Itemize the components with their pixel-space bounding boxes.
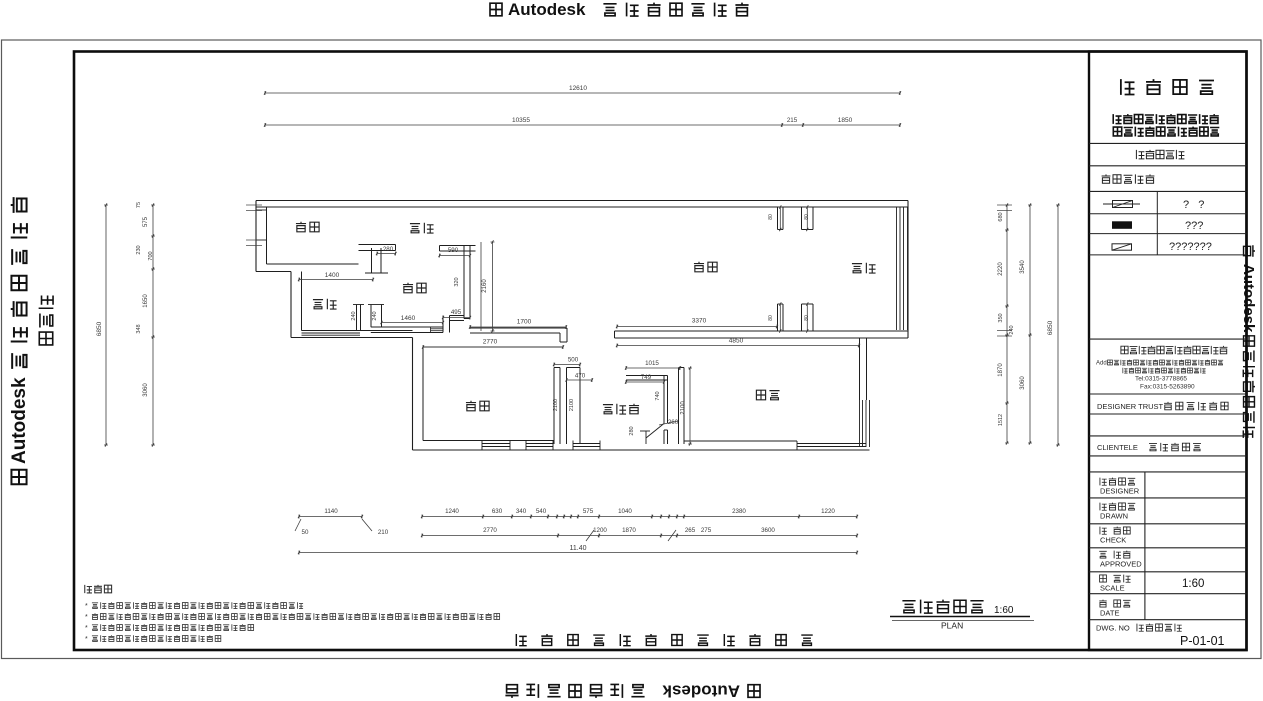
svg-text:630: 630 <box>492 508 503 515</box>
svg-text:CHECK: CHECK <box>1100 536 1126 545</box>
svg-text:6850: 6850 <box>96 321 103 336</box>
svg-text:1700: 1700 <box>517 319 532 326</box>
svg-text:Autodesk: Autodesk <box>508 0 586 19</box>
svg-text:540: 540 <box>536 508 547 515</box>
svg-text:2100: 2100 <box>569 399 575 411</box>
svg-text:590: 590 <box>448 247 459 254</box>
svg-text:*: * <box>85 603 88 610</box>
svg-text:575: 575 <box>583 508 594 515</box>
svg-text:500: 500 <box>568 357 579 364</box>
svg-text:749: 749 <box>641 374 652 381</box>
svg-text:DESIGNER: DESIGNER <box>1100 487 1140 496</box>
svg-text:2770: 2770 <box>483 339 498 346</box>
svg-text:DESIGNER TRUST: DESIGNER TRUST <box>1097 402 1164 411</box>
svg-text:CLIENTELE: CLIENTELE <box>1097 443 1138 452</box>
svg-text:DATE: DATE <box>1100 609 1119 618</box>
svg-text:1140: 1140 <box>324 508 338 515</box>
svg-text:1650: 1650 <box>143 294 149 308</box>
svg-text:???????: ??????? <box>1169 241 1212 253</box>
svg-text:Add:: Add: <box>1096 361 1109 367</box>
svg-text:APPROVED: APPROVED <box>1100 560 1142 569</box>
svg-text:740: 740 <box>655 391 661 400</box>
svg-text:*: * <box>85 614 88 621</box>
svg-text:SCALE: SCALE <box>1100 584 1125 593</box>
svg-text:1400: 1400 <box>325 272 340 279</box>
svg-text:3540: 3540 <box>1020 260 1026 274</box>
svg-text:50: 50 <box>302 529 309 536</box>
svg-text:2380: 2380 <box>732 508 746 515</box>
svg-text:? ?: ? ? <box>1183 199 1204 211</box>
svg-text:470: 470 <box>575 373 586 380</box>
svg-text:3060: 3060 <box>143 383 149 397</box>
svg-text:10355: 10355 <box>512 117 530 124</box>
svg-text:1870: 1870 <box>622 527 636 534</box>
svg-text:2100: 2100 <box>681 401 687 415</box>
svg-text:12610: 12610 <box>569 85 587 92</box>
svg-text:6850: 6850 <box>1047 320 1054 335</box>
svg-text:2770: 2770 <box>483 527 497 534</box>
svg-text:210: 210 <box>378 529 389 536</box>
svg-text:4850: 4850 <box>729 338 744 345</box>
svg-text:1460: 1460 <box>401 315 416 322</box>
svg-text:1850: 1850 <box>838 117 853 124</box>
svg-text:495: 495 <box>451 309 462 316</box>
svg-text:680: 680 <box>998 212 1004 221</box>
svg-text:1015: 1015 <box>645 360 659 367</box>
svg-text:230: 230 <box>136 245 142 254</box>
svg-text:700: 700 <box>148 251 154 260</box>
svg-text:340: 340 <box>516 508 527 515</box>
svg-text:PLAN: PLAN <box>941 621 963 631</box>
svg-text:Autodesk: Autodesk <box>9 377 30 464</box>
svg-text:80: 80 <box>768 315 774 321</box>
svg-text:1200: 1200 <box>593 527 607 534</box>
svg-text:350: 350 <box>998 313 1004 322</box>
svg-text:Tel:0315-3778865: Tel:0315-3778865 <box>1135 376 1187 383</box>
svg-text:348: 348 <box>136 324 142 333</box>
svg-text:DRAWN: DRAWN <box>1100 512 1128 521</box>
svg-text:575: 575 <box>143 216 149 227</box>
svg-text:1040: 1040 <box>618 508 632 515</box>
svg-text:2100: 2100 <box>553 399 559 411</box>
svg-text:P-01-01: P-01-01 <box>1180 634 1225 648</box>
svg-text:1512: 1512 <box>998 414 1004 426</box>
svg-text:1870: 1870 <box>998 363 1004 377</box>
svg-text:320: 320 <box>454 277 460 286</box>
svg-text:280: 280 <box>383 246 394 253</box>
svg-text:Autodesk: Autodesk <box>662 682 740 701</box>
svg-text:275: 275 <box>701 527 712 534</box>
svg-text:3060: 3060 <box>1020 376 1026 390</box>
svg-text:1:60: 1:60 <box>994 605 1014 616</box>
svg-text:265: 265 <box>685 527 696 534</box>
svg-text:1:60: 1:60 <box>1182 578 1204 590</box>
svg-text:*: * <box>85 625 88 632</box>
svg-text:75: 75 <box>136 202 142 208</box>
svg-text:3370: 3370 <box>692 318 707 325</box>
svg-text:240: 240 <box>372 311 378 320</box>
svg-text:1220: 1220 <box>821 508 835 515</box>
svg-text:3600: 3600 <box>761 527 775 534</box>
svg-text:240: 240 <box>351 311 357 320</box>
svg-text:2160: 2160 <box>482 279 488 293</box>
svg-text:*: * <box>85 636 88 643</box>
svg-text:80: 80 <box>768 214 774 220</box>
svg-text:215: 215 <box>787 117 798 124</box>
svg-text:280: 280 <box>629 426 635 435</box>
svg-text:Autodesk: Autodesk <box>1240 264 1257 333</box>
svg-text:Fax:0315-5263890: Fax:0315-5263890 <box>1140 384 1195 391</box>
svg-text:11.40: 11.40 <box>570 545 587 552</box>
svg-text:240: 240 <box>1009 325 1015 334</box>
svg-text:???: ??? <box>1185 220 1203 232</box>
svg-text:2220: 2220 <box>998 262 1004 276</box>
svg-text:DWG. NO: DWG. NO <box>1096 624 1130 633</box>
svg-text:1240: 1240 <box>445 508 459 515</box>
